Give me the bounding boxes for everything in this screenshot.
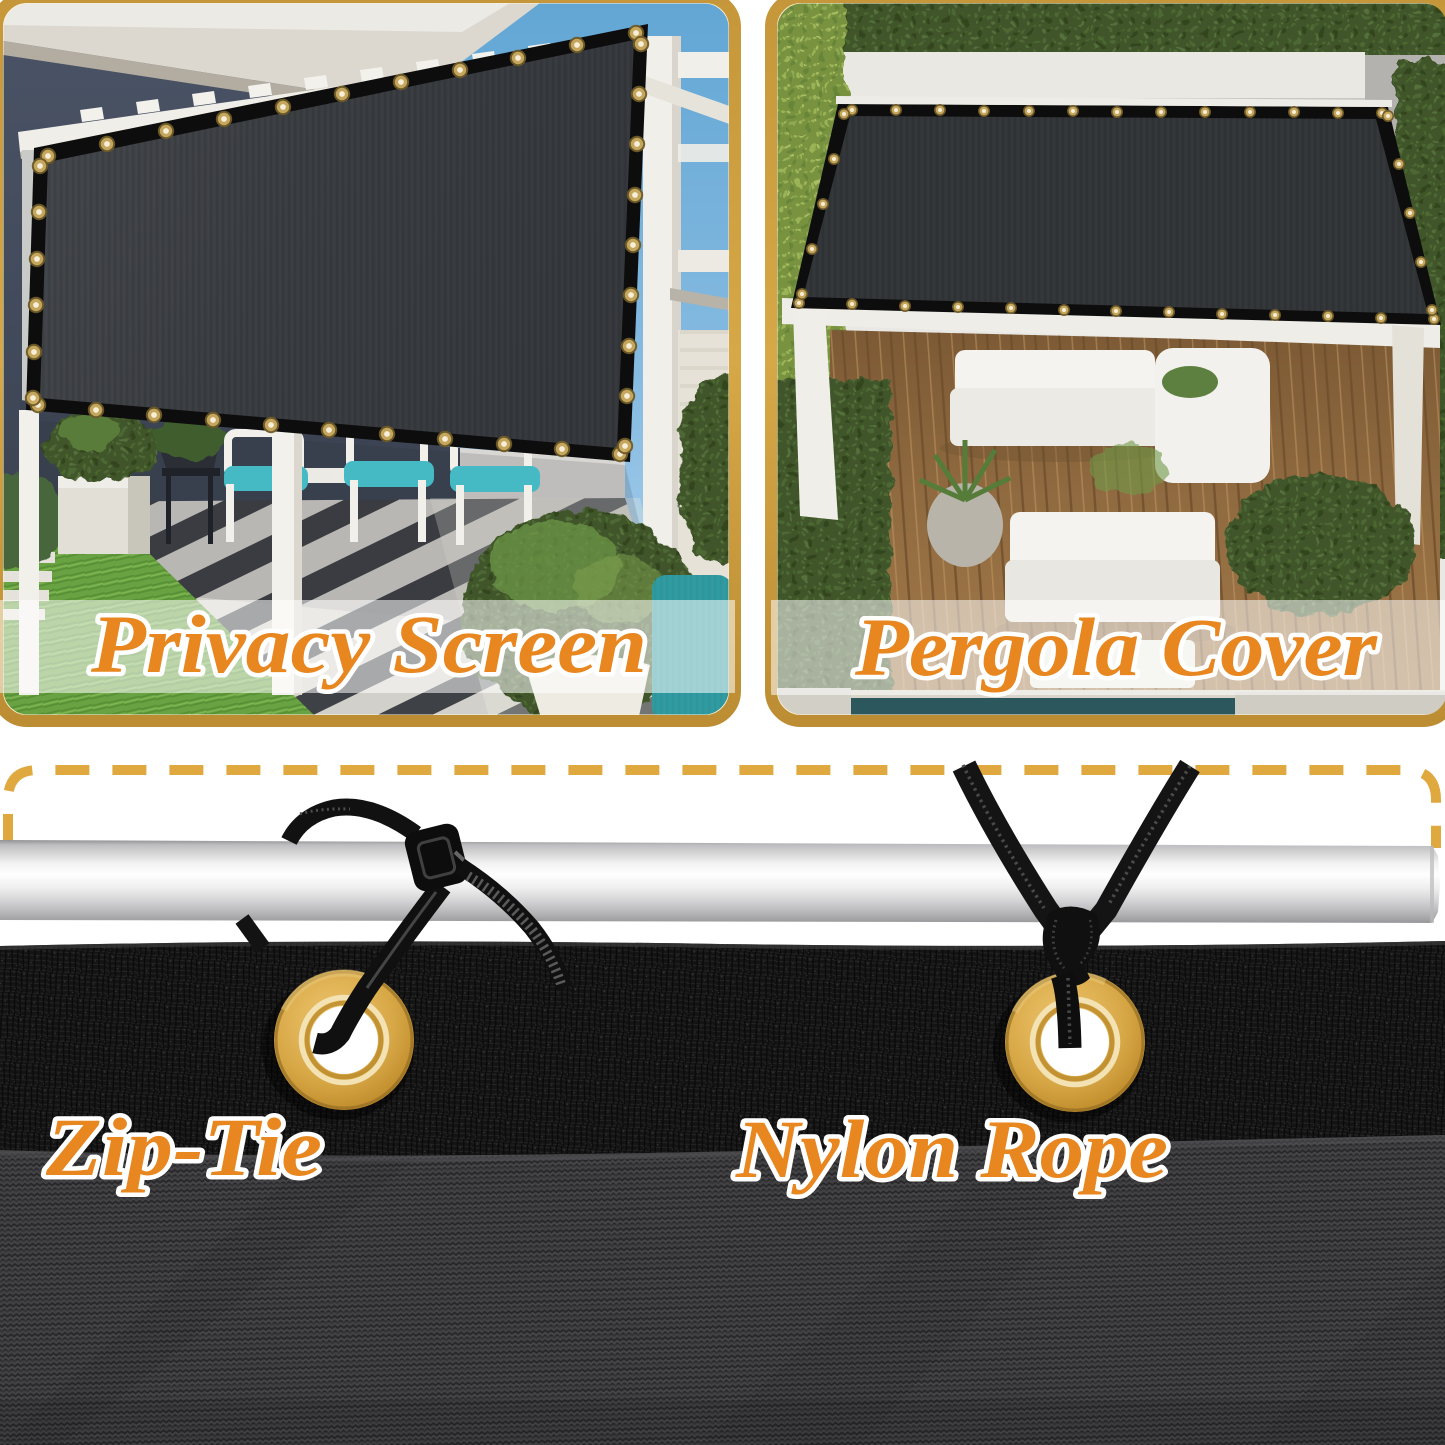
svg-text:Pergola Cover: Pergola Cover	[854, 601, 1378, 693]
svg-text:Nylon Rope: Nylon Rope	[735, 1103, 1168, 1195]
svg-text:Zip-Tie: Zip-Tie	[45, 1101, 322, 1193]
svg-text:Privacy Screen: Privacy Screen	[90, 598, 647, 690]
